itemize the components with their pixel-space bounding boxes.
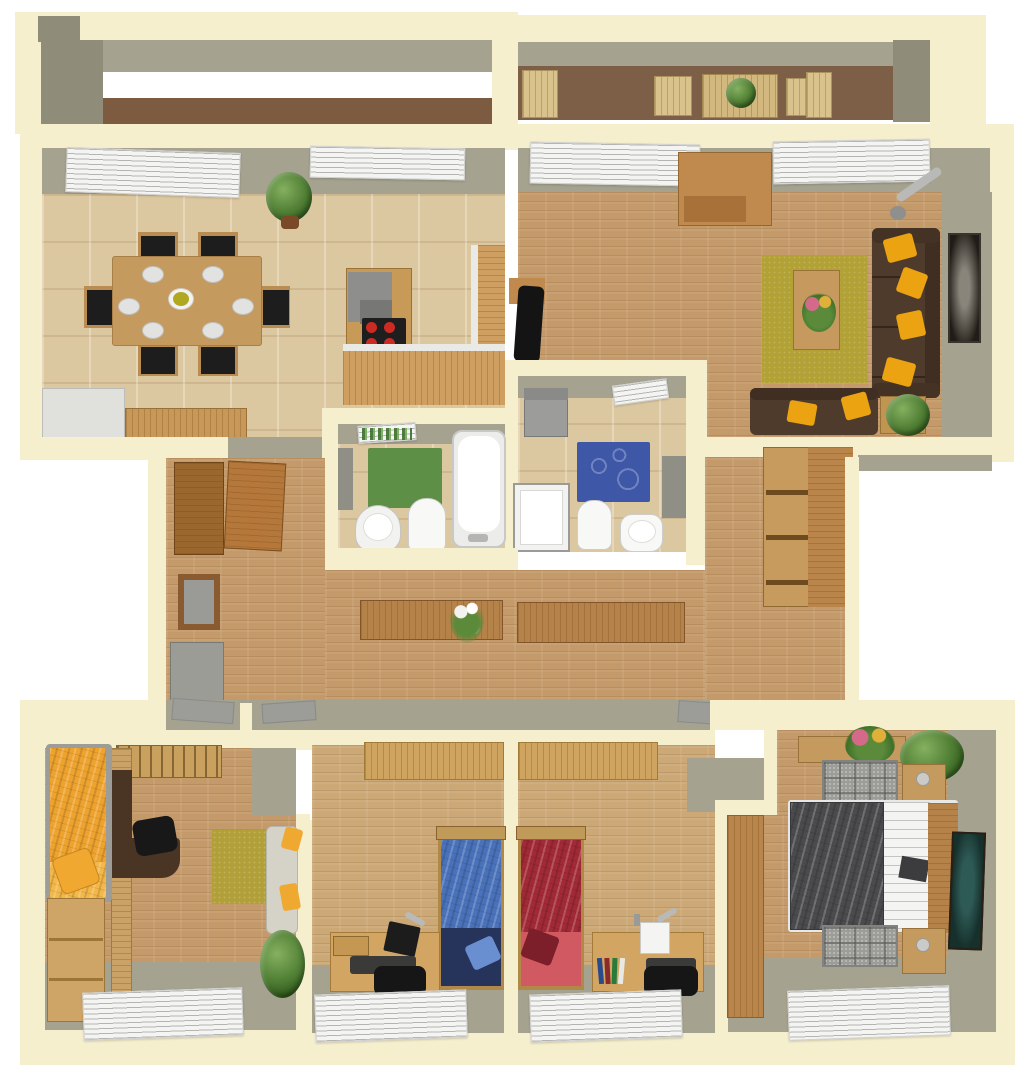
- dining-plate: [118, 298, 140, 315]
- bedroom1-notch-face: [252, 748, 296, 816]
- bath2-wall-top: [505, 360, 707, 376]
- master-rug-bottom: [822, 925, 898, 967]
- kidsblue-desk-box: [333, 936, 369, 956]
- master-wardrobe: [727, 815, 764, 1018]
- kitchen-wall-left: [20, 124, 42, 460]
- floorplan-canvas: [0, 0, 1024, 1080]
- dining-plate: [202, 266, 224, 283]
- kitchen-plant: [266, 172, 312, 222]
- bathtub-inner: [458, 436, 500, 532]
- terrace-bench-right: [806, 72, 832, 118]
- dining-centerpiece-salad: [173, 292, 189, 306]
- bedroom1-rug: [212, 830, 270, 904]
- room-door-open: [261, 700, 316, 724]
- living-cabinet-front: [684, 196, 746, 222]
- kidsred-book: [612, 958, 618, 984]
- cooktop-burner: [384, 322, 395, 333]
- bath2-wall-right: [686, 360, 707, 565]
- red-bed-blanket: [521, 840, 581, 934]
- living-wall-bottom: [700, 437, 1012, 457]
- terrace-left-wall-face: [41, 40, 505, 74]
- dining-plate: [142, 266, 164, 283]
- room-door-open: [171, 698, 234, 724]
- bookshelf-shelf: [766, 580, 808, 585]
- bedroom1-wall-divider: [296, 820, 312, 1032]
- master-rug-top: [822, 760, 898, 802]
- terrace-left-wall-wedge: [41, 40, 103, 126]
- sofa-pillow: [786, 400, 817, 427]
- living-window-right: [773, 139, 931, 185]
- master-dresser-flowers: [845, 726, 895, 764]
- side-table-plant: [886, 394, 930, 436]
- kidsblue-window: [314, 989, 468, 1042]
- kitchen-door-opening: [228, 437, 336, 460]
- bath2-toilet: [577, 500, 612, 550]
- dining-plate: [202, 322, 224, 339]
- single-bed-blanket-orange: [50, 748, 106, 864]
- master-television: [948, 831, 986, 950]
- kitchen-counter-edge-h: [343, 344, 505, 351]
- washing-machine-top: [524, 388, 568, 400]
- terrace-left-floor: [103, 72, 505, 100]
- kitchen-sideboard: [125, 408, 247, 438]
- dining-plate: [232, 298, 254, 315]
- sofa-vertical-back: [925, 230, 940, 396]
- dresser-drawer-line: [49, 938, 103, 941]
- hall-flowers: [450, 595, 484, 643]
- hall-wall-right: [845, 457, 859, 705]
- master-window: [787, 985, 951, 1041]
- kids-wall-divider: [504, 733, 518, 1033]
- living-wall-bottom-face: [858, 455, 992, 471]
- hall-sideboard-right: [517, 602, 685, 643]
- kidsred-wardrobe: [518, 742, 658, 780]
- dining-plate: [142, 322, 164, 339]
- living-window-left: [530, 142, 701, 187]
- bath1-wall-bottom: [322, 548, 518, 572]
- living-wall-right: [990, 124, 1014, 462]
- terrace-left-corner-face: [38, 16, 80, 42]
- kitchen-plant-pot: [281, 216, 299, 229]
- bath1-window-plants: [362, 428, 412, 440]
- bath2-wall-shelf: [662, 456, 686, 518]
- blue-bed-blanket: [441, 840, 501, 930]
- nightstand-lamp: [916, 938, 930, 952]
- master-jog-wall-v: [764, 726, 777, 806]
- dining-chair-bottom2-seat: [201, 347, 235, 374]
- terrace-right-wall-face: [518, 42, 908, 68]
- kidsblue-wardrobe: [364, 742, 504, 780]
- dining-chair-left-seat: [87, 290, 113, 325]
- hall-closet-door2: [224, 461, 287, 552]
- kitchen-window-right: [310, 146, 466, 181]
- kidsblue-laptop: [383, 921, 421, 957]
- blue-bed-headboard: [436, 826, 506, 840]
- red-bed-headboard: [516, 826, 586, 840]
- terrace-right-end-face: [893, 40, 935, 122]
- bookshelf-shelf: [766, 535, 808, 540]
- coffee-table-flowers: [802, 292, 836, 332]
- shower-inner: [520, 490, 563, 545]
- kitchen-wall-top: [20, 124, 507, 150]
- dining-chair-right-seat: [263, 290, 289, 325]
- kidsred-lamp-stem: [634, 914, 640, 926]
- bedroom1-window: [82, 987, 244, 1041]
- outer-wall-left: [20, 730, 45, 1063]
- master-wall-top: [710, 700, 1015, 730]
- bath2-sink-basin: [628, 520, 656, 543]
- kitchen-white-cabinet: [42, 388, 125, 438]
- bedroom1-plant: [260, 930, 305, 998]
- outer-wall-right: [995, 700, 1015, 1063]
- double-bed-duvet: [790, 802, 884, 930]
- terrace-bench-left: [522, 70, 558, 118]
- void-left-wall-bottom: [20, 700, 166, 730]
- hall-mirror-glass: [184, 580, 214, 624]
- kitchen-counter-edge-v: [471, 245, 478, 350]
- bath1-wall-shelf: [338, 448, 353, 510]
- terrace-left-wall-top: [15, 12, 507, 42]
- bath1-wall-top: [322, 408, 518, 424]
- nightstand-lamp: [916, 772, 930, 786]
- kitchen-window-left: [65, 147, 240, 198]
- bath1-sink-basin: [363, 513, 393, 541]
- terrace-chair-left: [654, 76, 692, 116]
- bath2-blue-rug: [577, 442, 650, 502]
- dining-chair-bottom1-seat: [141, 347, 175, 374]
- wall-picture: [948, 233, 981, 343]
- kitchen-counter-horizontal: [343, 351, 505, 405]
- terrace-right-end-wall: [930, 15, 986, 131]
- sofa-pillow: [896, 310, 927, 341]
- cooktop-burner: [366, 322, 377, 333]
- bedroom1-office-chair: [131, 815, 179, 858]
- bathtub-faucet: [468, 534, 488, 542]
- hall-wall-left: [148, 437, 166, 722]
- kitchen-counter-vertical: [478, 245, 505, 350]
- bookshelf-shelf: [766, 490, 808, 495]
- dresser-drawer-line: [49, 978, 103, 981]
- terrace-table-plant: [726, 78, 756, 108]
- television-left: [513, 285, 544, 363]
- kidsred-monitor: [640, 922, 670, 954]
- double-bed-runner: [898, 856, 929, 883]
- bedroom1-desk: [112, 770, 132, 848]
- bath1-toilet: [408, 498, 446, 552]
- terrace-left-deck: [103, 98, 505, 125]
- floor-lamp-base: [890, 206, 906, 220]
- kidsred-window: [529, 989, 683, 1042]
- hall-closet-door1: [174, 462, 224, 555]
- terrace-right-wall-top: [505, 15, 960, 43]
